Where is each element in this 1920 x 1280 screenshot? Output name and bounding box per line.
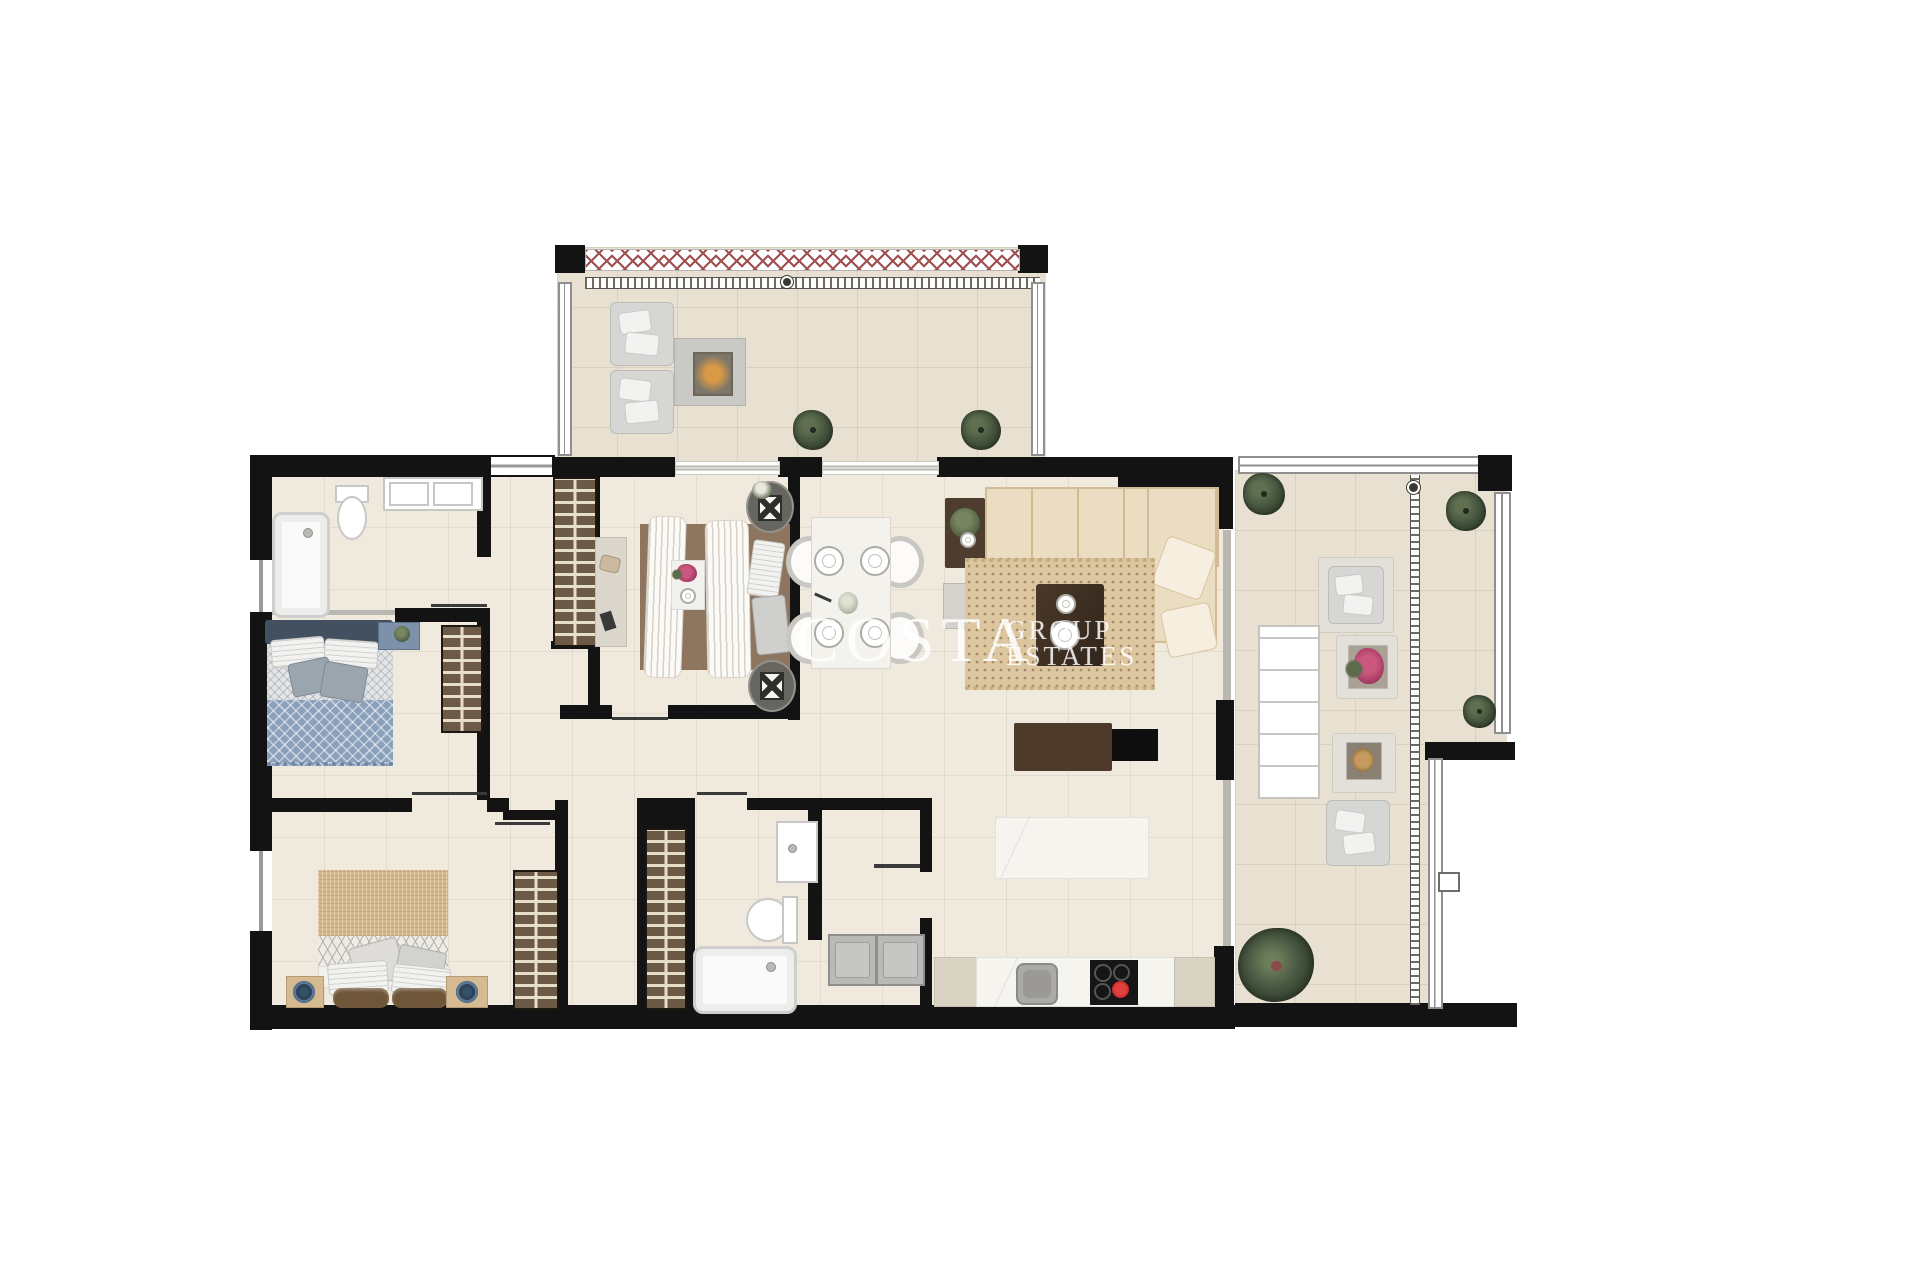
wall-bottom-terrace <box>1235 1003 1517 1027</box>
door-leaf-bath2 <box>697 792 747 795</box>
nightstand-plant <box>394 626 410 642</box>
wall-top-living <box>1048 457 1233 477</box>
wall-bath2-top <box>747 798 823 810</box>
master-bolster <box>392 988 448 1008</box>
door-leaf-laundry <box>874 864 920 868</box>
nightstand-lamp-symbol <box>760 672 784 700</box>
bathtub-1 <box>272 512 330 618</box>
hob-ring <box>1113 964 1130 981</box>
master-wardrobe <box>513 870 559 1010</box>
glass-balustrade-north <box>585 249 1020 271</box>
tray-flowers <box>677 564 697 582</box>
wall-wardrobeB-left <box>637 828 645 1006</box>
flower-magenta <box>1354 648 1384 684</box>
watermark-costa: COSTA <box>796 608 1036 672</box>
wall-entry-top <box>820 798 932 810</box>
kitchen-island <box>996 818 1148 878</box>
track-motor-symbol <box>783 278 791 286</box>
lounge-cushion <box>624 331 660 356</box>
tray-plate <box>680 588 696 604</box>
bed2-wardrobe <box>441 625 483 733</box>
sink-basin-right <box>433 482 473 506</box>
pillar-top-left <box>555 245 585 273</box>
pillar-top-right <box>1018 245 1048 273</box>
pergola-track-north <box>585 277 1040 289</box>
vanity-2 <box>776 821 818 883</box>
master-bolster <box>333 988 389 1008</box>
tub-drain <box>303 528 313 538</box>
side-table-dish <box>960 532 976 548</box>
wall-entry-right-a <box>920 810 932 872</box>
door-leaf-bed2 <box>412 792 487 795</box>
hall-wardrobe-north <box>553 477 597 647</box>
wall-right-low <box>1214 946 1234 1029</box>
coffee-table-dish <box>1056 594 1076 614</box>
wall-bed3-bottom-a <box>560 705 612 719</box>
hob-ring <box>1094 964 1112 982</box>
vanity-2-faucet <box>788 844 797 853</box>
shrub-plant <box>1243 473 1285 515</box>
toilet-2-tank <box>782 896 798 944</box>
wall <box>778 457 822 477</box>
toilet-1-bowl <box>337 496 367 540</box>
outdoor-sofa <box>1258 625 1320 799</box>
shrub-plant <box>1463 695 1496 728</box>
wall-right-mid <box>1216 700 1234 780</box>
master-lamp-left <box>293 981 315 1003</box>
window-left-2 <box>250 851 272 931</box>
place-setting <box>814 546 844 576</box>
wall-bed2-bottom-a <box>250 798 412 812</box>
railing-terrace-east-upper <box>1494 492 1511 734</box>
door-leaf-bed3 <box>612 717 668 720</box>
lounge-cushion <box>618 377 652 403</box>
floor-plan: COSTA GROUP ESTATES <box>0 0 1920 1280</box>
glass-door-living-terrace <box>1223 530 1231 700</box>
lounge-chair-1 <box>610 302 674 366</box>
wall-master-top <box>503 810 563 820</box>
glass-door-kitchen-terrace <box>1223 780 1231 946</box>
railing-west <box>558 282 572 456</box>
wall-bath1-bottom <box>395 608 483 622</box>
kitchen-sink <box>1016 963 1058 1005</box>
chair-cushion <box>1334 809 1367 834</box>
chair-cushion <box>1342 593 1374 616</box>
outdoor-armchair-2 <box>1326 800 1390 866</box>
master-bed-duvet <box>318 870 448 936</box>
tv-panel <box>1112 729 1158 761</box>
master-lamp-right <box>456 981 478 1003</box>
railing-east <box>1031 282 1045 456</box>
shrub-plant <box>961 410 1001 450</box>
place-setting <box>860 546 890 576</box>
sliding-door-sill <box>822 461 939 475</box>
wall <box>937 457 1048 477</box>
bed3-pillow-gray <box>751 594 791 655</box>
bed3-duvet-right <box>705 520 752 679</box>
bathtub-2 <box>693 946 797 1014</box>
bed2-duvet <box>267 700 393 766</box>
bed3-desk <box>596 538 626 646</box>
wall <box>555 457 675 477</box>
fire-pit-table <box>674 338 746 406</box>
lounge-chair-2 <box>610 370 674 434</box>
low-table-bowl <box>1352 748 1374 772</box>
outdoor-armchair-1 <box>1328 566 1384 624</box>
bed2-throw-pillow <box>319 660 369 703</box>
hob-ring <box>1094 983 1111 1000</box>
kitchen-cabinet-right <box>1175 958 1214 1006</box>
hob-ring-hot <box>1112 981 1129 998</box>
tub-2-drain <box>766 962 776 972</box>
shrub-plant <box>793 410 833 450</box>
nightstand-flowers <box>752 481 772 499</box>
bathroom-window <box>485 457 552 475</box>
wall-unit-box <box>1438 872 1460 892</box>
watermark-estates: ESTATES <box>1006 642 1137 670</box>
shrub-plant <box>1446 491 1486 531</box>
sliding-door-sill <box>675 461 780 475</box>
lounge-cushion <box>624 399 660 424</box>
sink-basin-left <box>389 482 429 506</box>
window-left-1 <box>250 560 272 612</box>
door-leaf-bath1 <box>431 604 487 607</box>
kitchen-cabinet-left <box>935 958 977 1006</box>
dryer <box>876 934 925 986</box>
media-console-lamp <box>1014 723 1112 771</box>
door-leaf-master <box>495 822 550 825</box>
railing-terrace-east-top <box>1238 456 1482 474</box>
washer <box>828 934 877 986</box>
track-motor-symbol <box>1409 483 1418 492</box>
lounge-cushion <box>618 309 653 335</box>
wall-wardrobeB-top <box>637 798 689 828</box>
sofa-pillow <box>1160 601 1219 658</box>
fire-pit-burner <box>693 352 733 396</box>
kitchen-counter <box>977 958 1175 1006</box>
chair-cushion <box>1342 831 1376 856</box>
track-strip-vertical <box>1410 475 1420 1005</box>
pillar-terrace-east <box>1478 455 1512 491</box>
hall-wardrobe-south <box>645 828 687 1010</box>
